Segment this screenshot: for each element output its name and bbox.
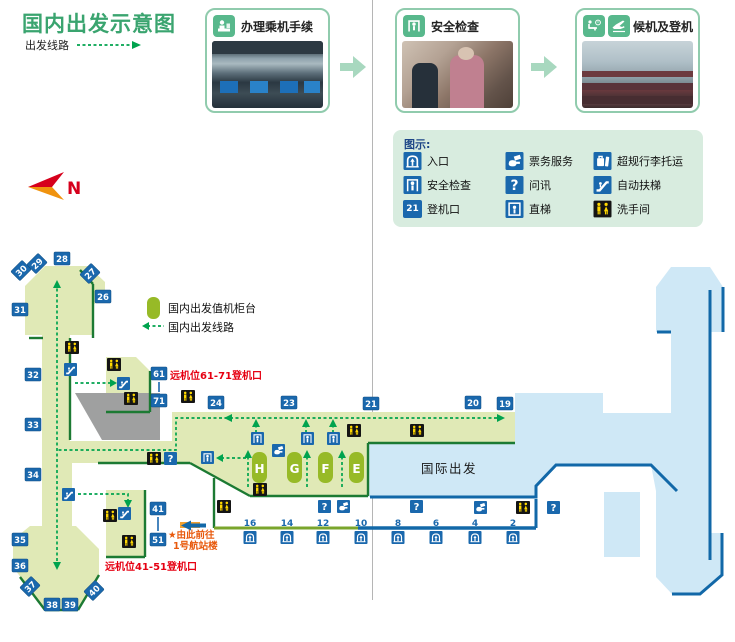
- svg-text:26: 26: [97, 293, 109, 303]
- restroom-icon: [122, 535, 136, 548]
- entrance-icon: [507, 531, 520, 544]
- question-icon: [164, 452, 177, 465]
- entrance-number-10: 10: [355, 519, 368, 529]
- domestic-departure-diagram: 国内出发示意图 出发线路 办理乘机手续: [0, 0, 735, 642]
- svg-text:36: 36: [14, 562, 26, 572]
- restroom-icon: [410, 424, 424, 437]
- gate-badge-61: 61: [151, 367, 167, 380]
- map-note: ★由此前往: [168, 529, 215, 541]
- gate-badge-19: 19: [497, 397, 513, 410]
- gate-badge-36: 36: [12, 559, 28, 572]
- svg-text:33: 33: [27, 421, 39, 431]
- gate-badge-23: 23: [281, 396, 297, 409]
- ticket-icon: [272, 444, 285, 457]
- checkin-island-label: F: [321, 462, 329, 476]
- entrance-icon: [430, 531, 443, 544]
- entrance-icon: [355, 531, 368, 544]
- gate-badge-35: 35: [12, 533, 28, 546]
- escalator-icon: [118, 507, 131, 520]
- gate-badge-20: 20: [465, 396, 481, 409]
- restroom-icon: [217, 500, 231, 513]
- escalator-icon: [64, 363, 77, 376]
- svg-text:32: 32: [27, 371, 39, 381]
- svg-text:38: 38: [46, 601, 58, 611]
- gate-badge-34: 34: [25, 468, 41, 481]
- gate-badge-21: 21: [363, 397, 379, 410]
- svg-text:23: 23: [283, 399, 295, 409]
- svg-text:20: 20: [467, 399, 479, 409]
- restroom-icon: [124, 392, 138, 405]
- entrance-icon: [469, 531, 482, 544]
- gate-badge-33: 33: [25, 418, 41, 431]
- map-note: 远机位41-51登机口: [105, 560, 197, 573]
- checkin-island-label: E: [352, 462, 360, 476]
- svg-text:34: 34: [27, 471, 39, 481]
- svg-text:N: N: [67, 179, 81, 199]
- security-icon: [327, 432, 340, 445]
- restroom-icon: [253, 483, 267, 496]
- restroom-icon: [147, 452, 161, 465]
- ticket-icon: [337, 500, 350, 513]
- entrance-number-6: 6: [433, 519, 439, 529]
- map-note: 远机位61-71登机口: [170, 369, 262, 382]
- checkin-island-label: H: [254, 462, 264, 476]
- restroom-icon: [103, 509, 117, 522]
- entrance-number-8: 8: [395, 519, 401, 529]
- svg-text:35: 35: [14, 536, 26, 546]
- entrance-number-2: 2: [510, 519, 516, 529]
- security-icon: [201, 451, 214, 464]
- compass-icon: N: [28, 172, 81, 200]
- svg-text:51: 51: [152, 536, 164, 546]
- international-departure-label: 国际出发: [421, 461, 477, 476]
- gray-service-block: [75, 393, 160, 440]
- restroom-icon: [107, 358, 121, 371]
- entrance-icon: [244, 531, 257, 544]
- entrance-number-12: 12: [317, 519, 330, 529]
- svg-text:41: 41: [152, 505, 164, 515]
- gate-badge-28: 28: [54, 252, 70, 265]
- security-icon: [301, 432, 314, 445]
- entrance-icon: [281, 531, 294, 544]
- map-legend-swatches: [142, 297, 164, 330]
- svg-text:31: 31: [14, 306, 26, 316]
- map-note: 1号航站楼: [173, 540, 218, 552]
- map-legend-route-label: 国内出发线路: [168, 320, 234, 334]
- svg-text:28: 28: [56, 255, 68, 265]
- entrance-number-16: 16: [244, 519, 257, 529]
- svg-text:61: 61: [153, 370, 165, 380]
- restroom-icon: [65, 341, 79, 354]
- svg-text:71: 71: [153, 397, 165, 407]
- gate-badge-51: 51: [150, 533, 166, 546]
- question-icon: [547, 501, 560, 514]
- entrance-number-4: 4: [472, 519, 478, 529]
- security-icon: [251, 432, 264, 445]
- svg-text:39: 39: [64, 601, 76, 611]
- checkin-island-label: G: [290, 462, 300, 476]
- gate-badge-26: 26: [95, 290, 111, 303]
- terminal1-link: [180, 521, 206, 531]
- svg-text:24: 24: [210, 399, 222, 409]
- restroom-icon: [181, 390, 195, 403]
- question-icon: [410, 500, 423, 513]
- escalator-icon: [117, 377, 130, 390]
- svg-text:19: 19: [499, 400, 511, 410]
- entrance-icon: [392, 531, 405, 544]
- route-dash-arrowhead: [142, 322, 149, 330]
- gate-badge-71: 71: [151, 394, 167, 407]
- checkin-counter-swatch: [147, 297, 160, 319]
- ticket-icon: [474, 501, 487, 514]
- terminal-map: ?: [0, 0, 735, 642]
- svg-text:21: 21: [365, 400, 377, 410]
- gate-badge-41: 41: [150, 502, 166, 515]
- gate-badge-24: 24: [208, 396, 224, 409]
- map-legend-checkin-label: 国内出发值机柜台: [168, 301, 256, 315]
- gate-badge-32: 32: [25, 368, 41, 381]
- entrance-icon: [317, 531, 330, 544]
- entrance-number-14: 14: [281, 519, 294, 529]
- restroom-icon: [516, 501, 530, 514]
- gate-badge-39: 39: [62, 598, 78, 611]
- question-icon: [318, 500, 331, 513]
- gate-badge-38: 38: [44, 598, 60, 611]
- escalator-icon: [62, 488, 75, 501]
- gate-badge-31: 31: [12, 303, 28, 316]
- restroom-icon: [347, 424, 361, 437]
